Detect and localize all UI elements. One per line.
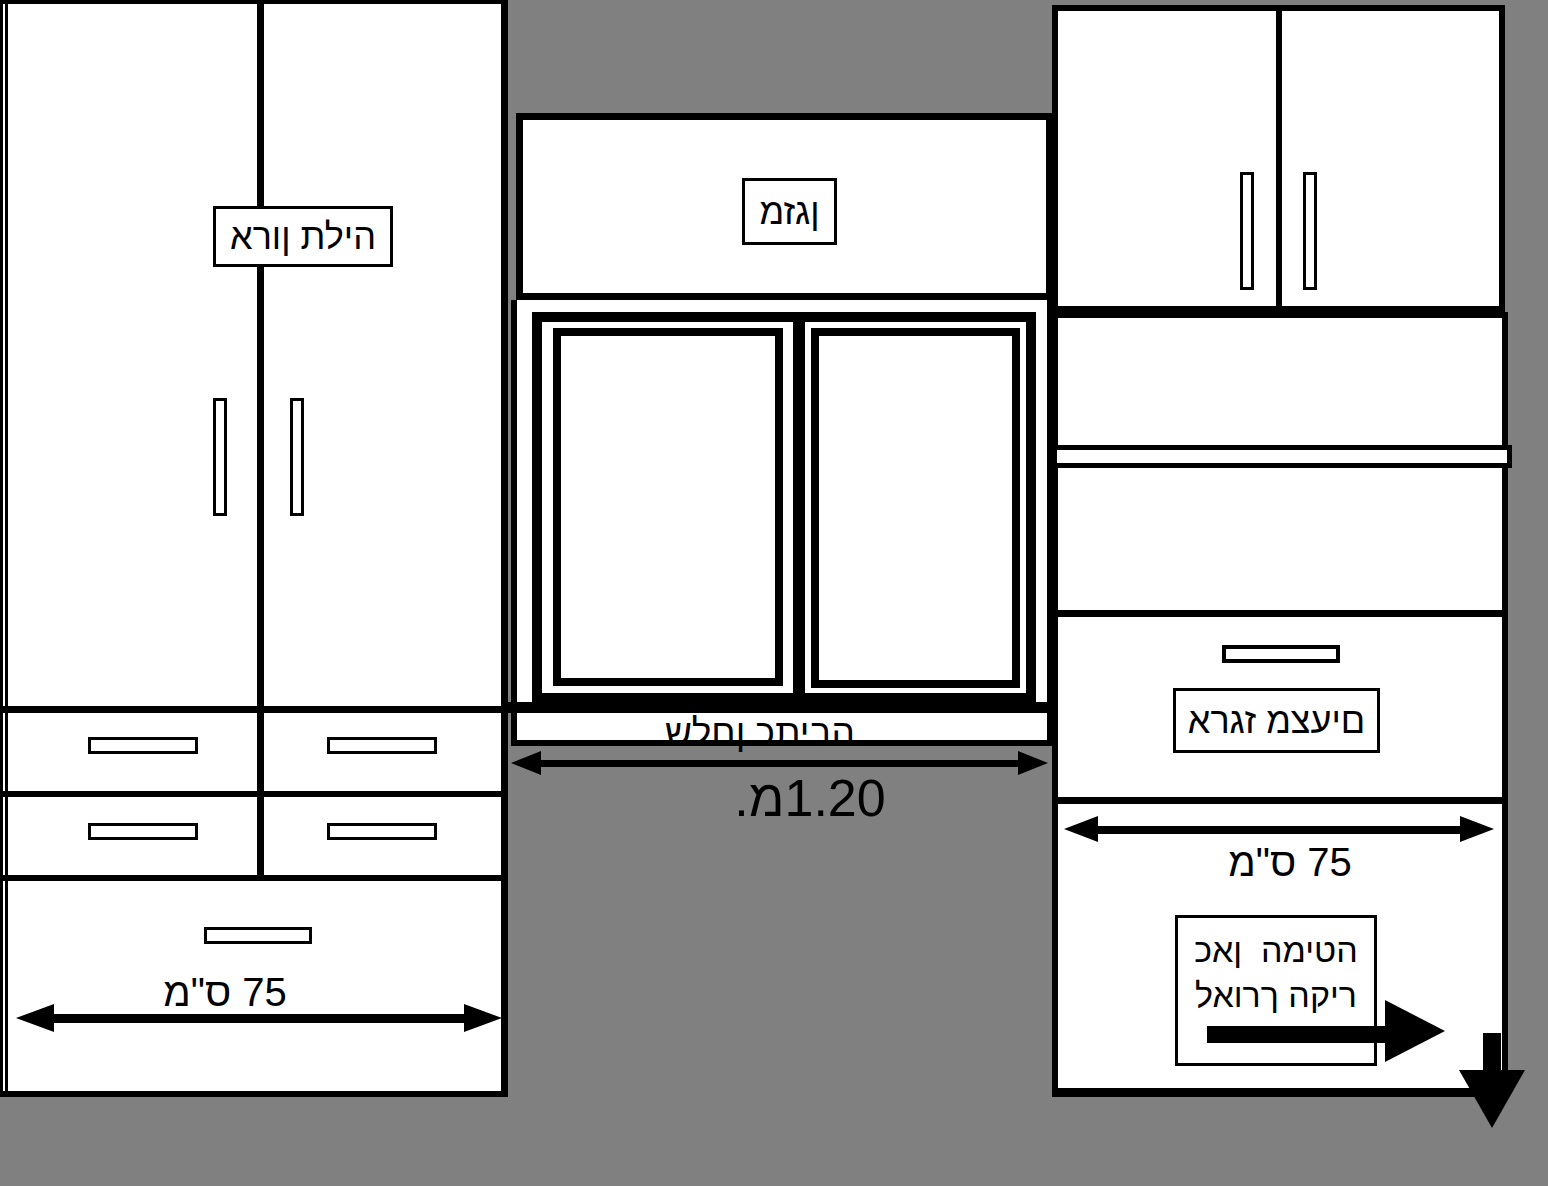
wardrobe-label: ארון תליה <box>230 216 376 258</box>
bed-note-line2: לאורך הקיר <box>1195 973 1357 1018</box>
bed-direction-arrow-right <box>1207 1026 1389 1043</box>
wardrobe-door-handle-left-icon <box>213 398 227 516</box>
ac-label: מזגן <box>759 191 819 233</box>
desk-width-label: .מ1.20 <box>650 768 970 828</box>
wardrobe-base-handle-icon <box>204 927 312 944</box>
wardrobe-drawer-handle-icon <box>88 823 198 840</box>
window-left-pane <box>553 328 783 686</box>
wardrobe-door-handle-right-icon <box>290 398 304 516</box>
wardrobe-inner-left-line <box>5 0 8 1097</box>
linen-label-box: ארגז מצעים <box>1173 688 1380 753</box>
cabinet-door-handle-right-icon <box>1303 172 1317 290</box>
cabinet-door-handle-left-icon <box>1240 172 1254 290</box>
ac-label-box: מזגן <box>742 178 837 245</box>
room-elevation-diagram: ארון תליה מ"ס 75 מזגן שלחן כתיבה .מ1.20 … <box>0 0 1548 1186</box>
bed-direction-arrowhead-right-icon <box>1385 1000 1445 1062</box>
cabinet-shelf-band <box>1052 445 1512 468</box>
linen-label: ארגז מצעים <box>1188 700 1365 742</box>
cabinet-door-divider <box>1276 11 1282 306</box>
arrowhead-left-icon <box>16 1004 54 1032</box>
wardrobe-drawer-center-divider <box>257 713 264 875</box>
bed-note-line1: כאן המיטה <box>1194 928 1358 973</box>
wardrobe-drawer-handle-icon <box>327 737 437 754</box>
arrowhead-left-icon <box>1064 816 1098 842</box>
wardrobe-width-arrow <box>40 1014 468 1023</box>
linen-drawer-handle-icon <box>1222 645 1340 663</box>
wardrobe-drawer-bottom-line <box>0 875 508 881</box>
arrowhead-right-icon <box>1018 751 1048 775</box>
wardrobe-drawer-handle-icon <box>327 823 437 840</box>
bed-direction-arrow-down <box>1483 1033 1501 1073</box>
wardrobe-width-label: מ"ס 75 <box>40 970 410 1015</box>
arrowhead-left-icon <box>511 751 541 775</box>
wardrobe-label-box: ארון תליה <box>213 206 393 267</box>
wardrobe-door-divider <box>257 4 264 712</box>
linen-width-arrow <box>1088 826 1472 834</box>
bed-note-box: כאן המיטה לאורך הקיר <box>1175 915 1377 1066</box>
wardrobe-drawer-handle-icon <box>88 737 198 754</box>
linen-bottom-line <box>1052 797 1508 804</box>
linen-width-label: מ"ס 75 <box>1100 840 1480 885</box>
desk-width-arrow <box>530 760 1026 767</box>
window-right-pane <box>811 328 1020 688</box>
wardrobe-drawer-top-line <box>0 706 508 713</box>
arrowhead-right-icon <box>1460 816 1494 842</box>
bed-direction-arrowhead-down-icon <box>1459 1070 1525 1128</box>
wardrobe-drawer-middle-line <box>0 791 508 797</box>
arrowhead-right-icon <box>464 1004 502 1032</box>
cabinet-section-line <box>1052 610 1508 617</box>
desk-label: שלחן כתיבה <box>540 712 980 754</box>
window-mullion <box>793 322 805 694</box>
